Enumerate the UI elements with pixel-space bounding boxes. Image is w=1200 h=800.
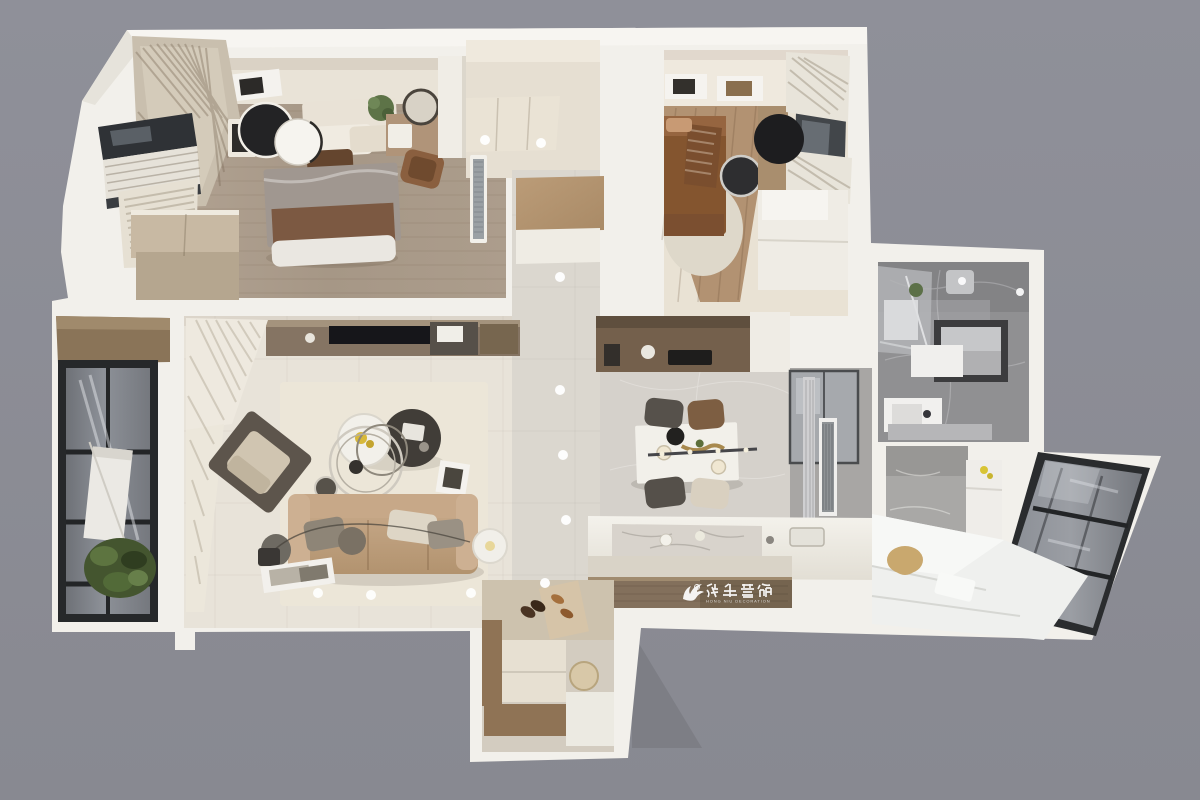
svg-text:HONG NIU DECORATION: HONG NIU DECORATION <box>706 599 771 604</box>
